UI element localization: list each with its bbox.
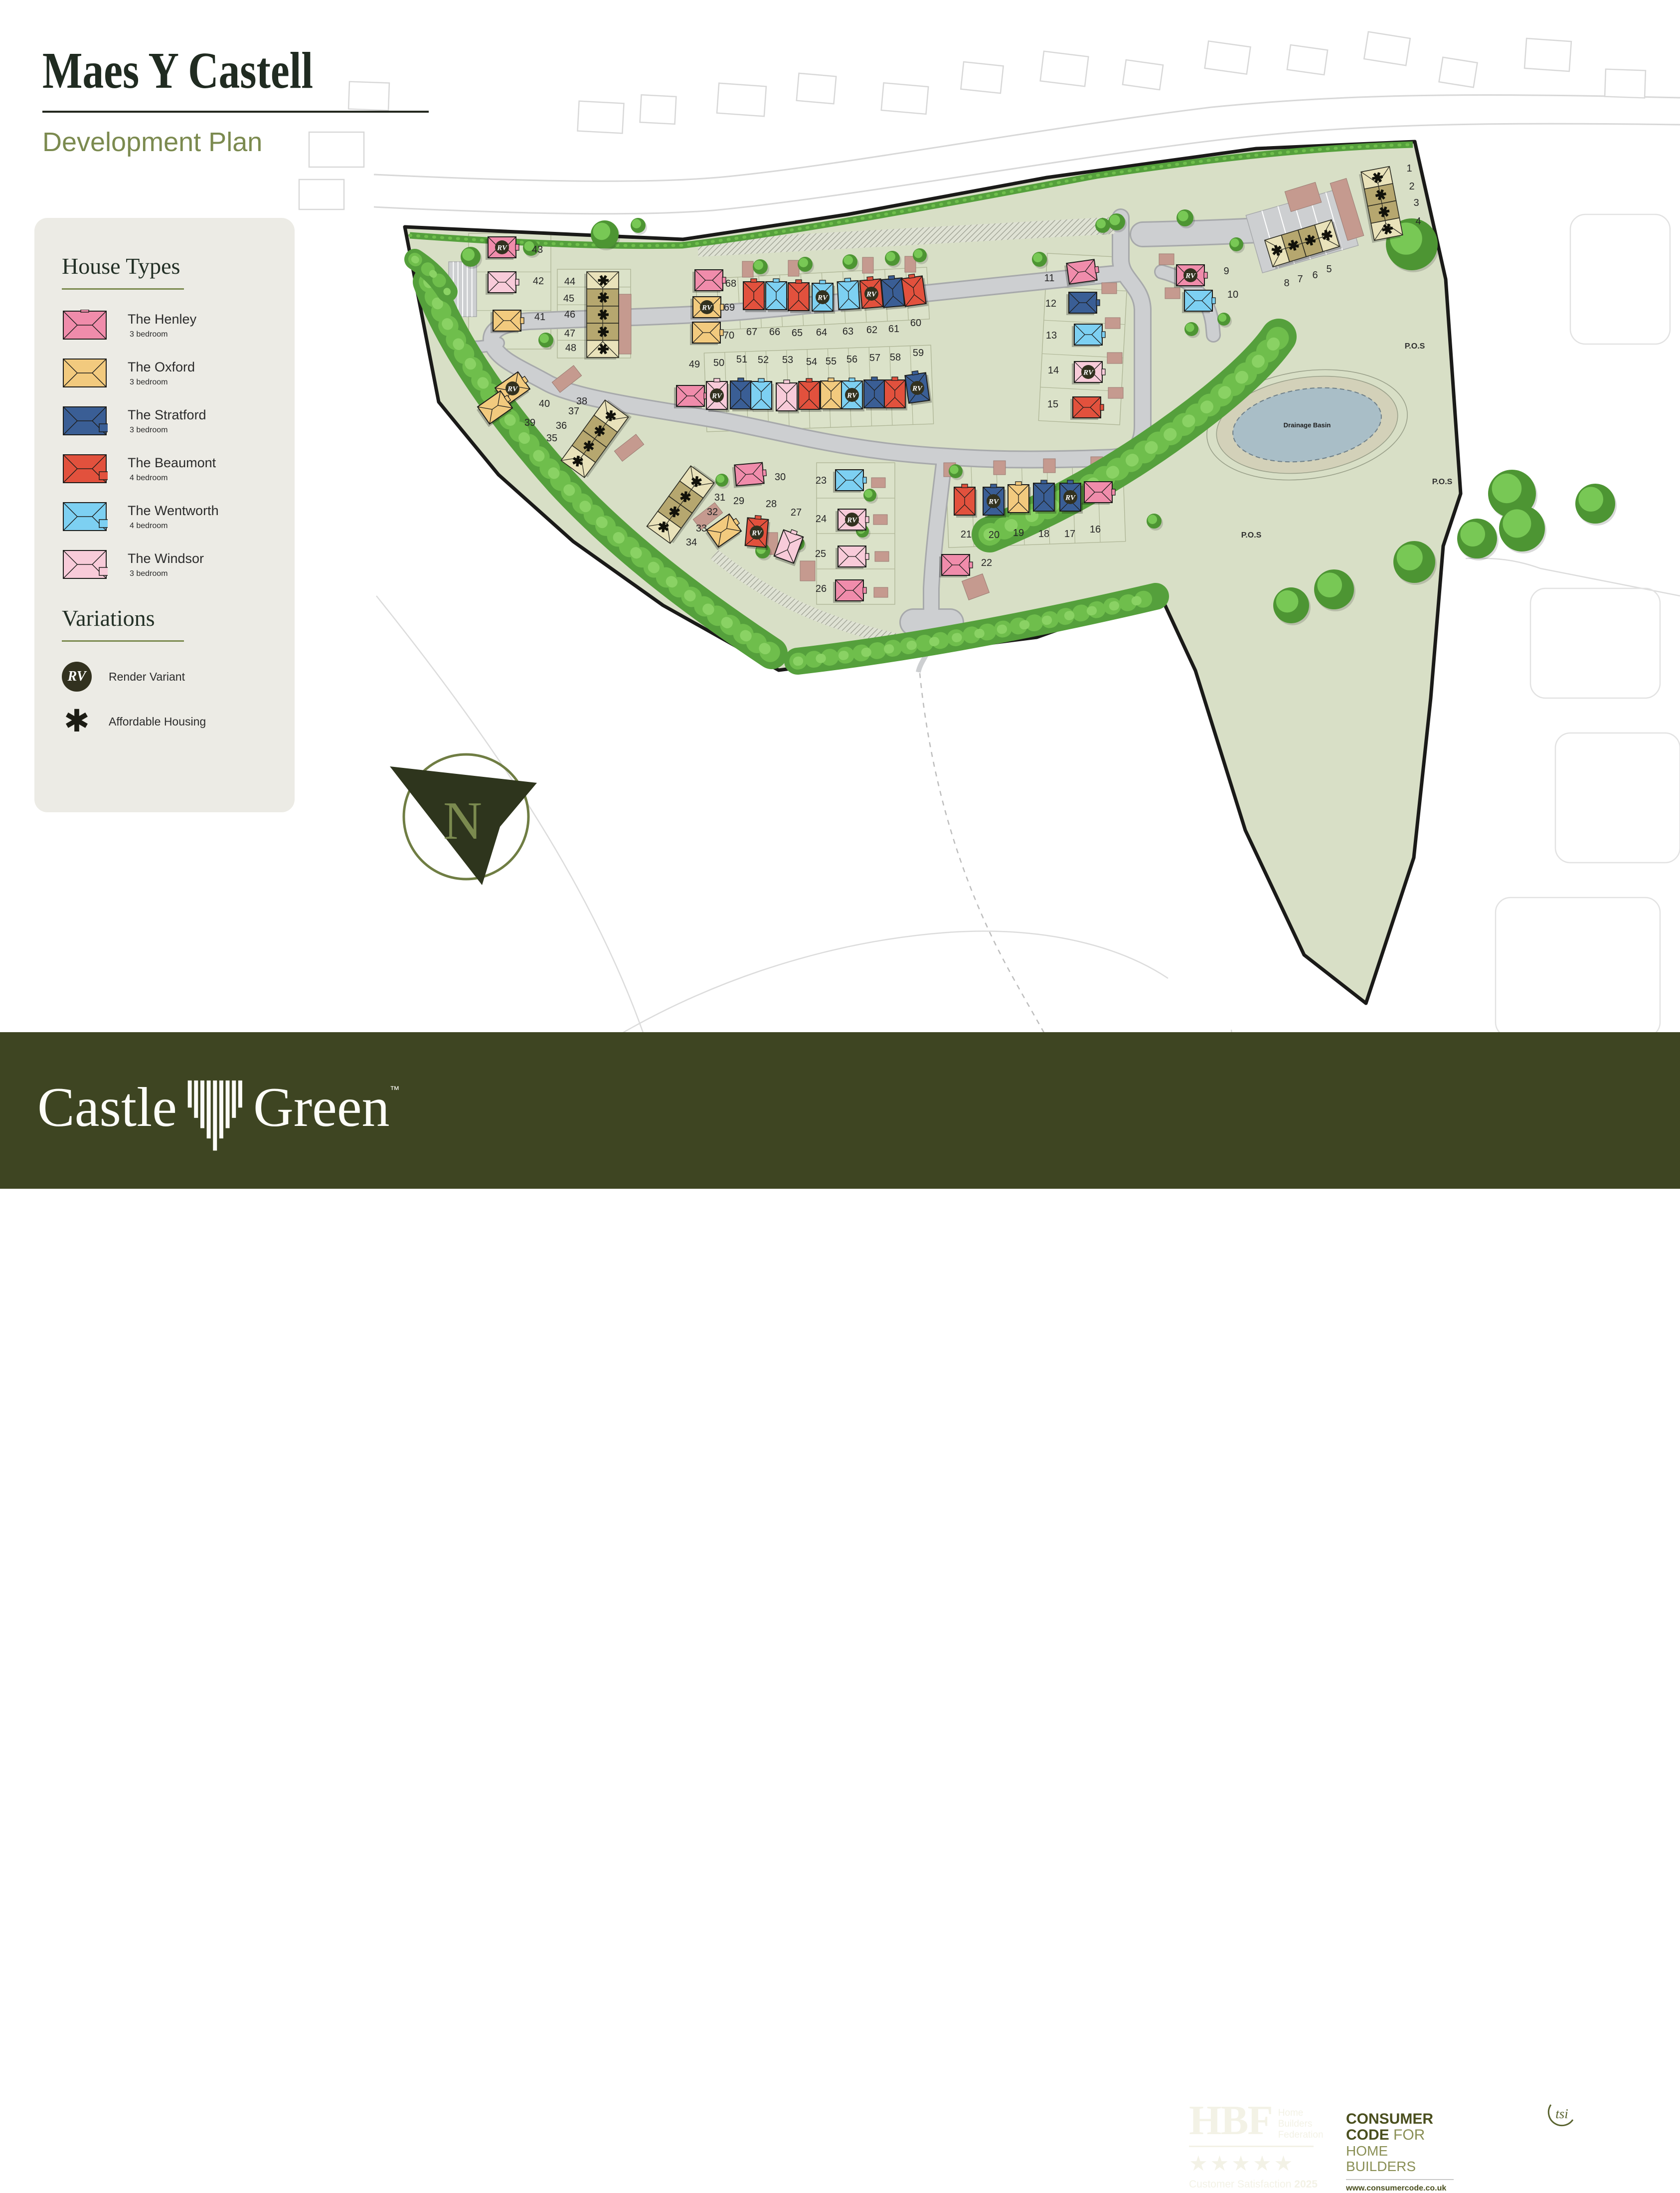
windsor-roof-icon (62, 549, 108, 580)
north-label: N (443, 791, 482, 851)
castle-green-logo: Castle Green ™ (37, 1080, 400, 1154)
pos-label: P.O.S (1241, 531, 1262, 540)
plot-number: 26 (816, 583, 827, 594)
render-variant-label: Render Variant (109, 670, 185, 684)
render-variant-icon: RV (62, 662, 92, 692)
plot-number: 18 (1038, 529, 1049, 540)
house-plot (692, 270, 726, 293)
castle-green-shield-icon (184, 1080, 246, 1154)
plot-number: 70 (723, 330, 734, 341)
house-type-name: The Windsor (128, 551, 204, 566)
wentworth-roof-icon (62, 501, 108, 532)
render-variant-badge: RV (710, 388, 724, 402)
render-variant-badge: RV (1063, 490, 1077, 504)
driveway (873, 515, 887, 525)
plot-number: 53 (782, 355, 793, 365)
driveway (618, 294, 631, 354)
driveway (742, 261, 753, 277)
plot-number: 22 (981, 557, 992, 568)
svg-text:RV: RV (1185, 272, 1196, 280)
plot-number: 66 (769, 327, 780, 338)
house-plot (1072, 324, 1105, 347)
legend-panel: House Types The Henley 3 bedroom The Oxf… (34, 218, 295, 812)
consumer-code-line2: CODE FOR (1346, 2127, 1454, 2143)
plot-number: 3 (1413, 197, 1419, 208)
consumer-code-line3: HOME BUILDERS (1346, 2144, 1454, 2175)
tree-icon (631, 218, 647, 235)
consumer-code-url: www.consumercode.co.uk (1346, 2184, 1454, 2193)
legend-title: House Types (62, 253, 267, 279)
legend-item-oxford: The Oxford 3 bedroom (62, 358, 267, 388)
plot-number: 2 (1409, 181, 1414, 192)
legend-item-henley: The Henley 3 bedroom (62, 310, 267, 341)
svg-text:RV: RV (507, 385, 518, 393)
plot-number: 14 (1048, 365, 1059, 376)
plot-number: 13 (1046, 330, 1057, 341)
legend-item-beaumont: The Beaumont 4 bedroom (62, 453, 267, 484)
svg-text:✱: ✱ (595, 309, 611, 320)
plot-number: 65 (792, 328, 803, 339)
plot-number: 19 (1013, 528, 1024, 539)
render-variant-badge: RV (505, 381, 519, 395)
plot-number: 41 (534, 312, 545, 323)
plot-number: 67 (746, 327, 757, 338)
tsi-approved-code-text: APPROVED CODE™ (1488, 2149, 1633, 2168)
brand-trademark: ™ (390, 1085, 400, 1096)
plot-number: 21 (961, 529, 972, 540)
svg-text:RV: RV (988, 498, 1000, 506)
plot-number: 24 (816, 514, 827, 525)
plot-number: 20 (989, 530, 1000, 541)
driveway (1043, 459, 1055, 473)
house-plot (954, 484, 977, 518)
driveway (800, 561, 815, 581)
svg-text:RV: RV (866, 291, 877, 299)
consumer-code-logo: CONSUMER CODE FOR HOME BUILDERS www.cons… (1337, 2103, 1463, 2177)
house-plot (776, 380, 799, 413)
house-type-beds: 3 bedroom (130, 378, 195, 387)
render-variant-badge: RV (845, 513, 859, 527)
plot-number: 60 (910, 318, 921, 329)
plot-number: 1 (1406, 163, 1412, 174)
house-plot (486, 272, 519, 295)
plot-number: 50 (713, 358, 724, 368)
plot-number: 38 (576, 396, 587, 407)
svg-text:RV: RV (1083, 369, 1094, 377)
plot-number: 40 (539, 398, 550, 409)
pos-label: P.O.S (1405, 342, 1425, 351)
house-plot (1182, 290, 1215, 313)
plot-number: 30 (775, 472, 786, 483)
tree-icon (1457, 519, 1499, 560)
plot-number: 61 (888, 324, 899, 335)
svg-text:RV: RV (497, 244, 508, 252)
legend-item-windsor: The Windsor 3 bedroom (62, 549, 267, 580)
hbf-logo: HBF HomeBuildersFederation ★★★★★ Custome… (1189, 2102, 1314, 2191)
plot-number: 16 (1090, 524, 1101, 535)
svg-text:RV: RV (701, 304, 713, 312)
hbf-mark: HBF (1189, 2102, 1272, 2140)
render-variant-badge: RV (987, 494, 1001, 508)
plot-number: 48 (565, 343, 576, 354)
page-subtitle: Development Plan (42, 127, 429, 158)
plot-number: 37 (568, 406, 579, 417)
house-plot (751, 378, 774, 412)
hbf-sub: HomeBuildersFederation (1278, 2108, 1324, 2141)
tree-icon (1499, 506, 1546, 553)
stratford-roof-icon (62, 405, 108, 436)
house-plot (1070, 397, 1104, 420)
plot-number: 69 (724, 302, 735, 313)
tree-icon (1575, 484, 1617, 526)
plot-number: 7 (1297, 274, 1303, 285)
render-variant-badge: RV (910, 381, 924, 395)
variations-underline (62, 640, 184, 642)
driveway (1102, 283, 1117, 294)
plot-number: 55 (826, 356, 837, 367)
brand-green: Green (253, 1080, 390, 1135)
svg-text:✱: ✱ (595, 343, 611, 355)
render-variant-badge: RV (845, 388, 859, 402)
svg-text:RV: RV (817, 294, 829, 302)
svg-text:✱: ✱ (595, 326, 611, 338)
plot-number: 46 (564, 309, 575, 320)
house-type-name: The Wentworth (128, 503, 219, 519)
plot-number: 54 (806, 357, 817, 367)
render-variant-badge: RV (495, 240, 509, 254)
plot-number: 36 (556, 420, 567, 431)
page-header: Maes Y Castell Development Plan (42, 45, 429, 158)
plot-number: 9 (1223, 266, 1229, 277)
house-type-beds: 4 bedroom (130, 474, 216, 483)
house-plot (1066, 292, 1100, 315)
render-variant-badge: RV (864, 287, 878, 301)
tsi-tradingstandards-text: TRADINGSTANDARDS.UK (1488, 2169, 1633, 2183)
plot-number: 12 (1045, 298, 1056, 309)
plot-number: 11 (1044, 273, 1055, 284)
house-plot (833, 470, 866, 493)
variations-title: Variations (62, 605, 267, 631)
plot-number: 34 (686, 537, 697, 548)
house-plot (1008, 482, 1031, 515)
plot-number: 25 (815, 548, 826, 559)
svg-text:RV: RV (711, 392, 723, 400)
title-underline (42, 111, 429, 113)
plot-number: 52 (758, 355, 769, 365)
driveway (1107, 353, 1122, 364)
house-type-name: The Henley (128, 312, 196, 327)
house-plot (833, 580, 866, 603)
driveway (1159, 254, 1174, 265)
affordable-housing-label: Affordable Housing (109, 715, 206, 729)
plot-number: 27 (791, 507, 802, 518)
plot-number: 10 (1227, 289, 1238, 300)
house-type-name: The Beaumont (128, 455, 216, 471)
svg-text:RV: RV (751, 530, 763, 538)
house-plot (939, 554, 973, 577)
beaumont-roof-icon (62, 453, 108, 484)
driveway (1165, 288, 1180, 299)
svg-text:RV: RV (1065, 494, 1076, 502)
svg-text:tsi: tsi (1555, 2106, 1568, 2121)
house-plot (821, 378, 843, 411)
render-variant-badge: RV (1081, 365, 1095, 379)
svg-text:RV: RV (912, 385, 923, 393)
house-plot (1033, 480, 1056, 514)
plot-number: 63 (842, 326, 853, 337)
plot-number: 44 (564, 276, 575, 287)
house-type-beds: 3 bedroom (130, 426, 206, 435)
svg-text:RV: RV (846, 517, 858, 525)
page-title: Maes Y Castell (42, 45, 359, 97)
house-type-beds: 3 bedroom (130, 569, 204, 578)
hbf-rule (1189, 2146, 1314, 2147)
plot-number: 64 (816, 327, 827, 338)
henley-roof-icon (62, 310, 108, 341)
driveway (1108, 387, 1123, 398)
plot-number: 59 (913, 348, 924, 359)
legend-item-wentworth: The Wentworth 4 bedroom (62, 501, 267, 532)
plot-number: 28 (766, 499, 777, 510)
tsi-mountain-icon: tsi (1491, 2097, 1630, 2149)
plot-number: 56 (846, 354, 857, 365)
plot-number: 31 (714, 492, 725, 503)
consumer-code-rule (1346, 2179, 1454, 2180)
house-plot (836, 546, 869, 569)
render-variant-item: RV Render Variant (62, 662, 267, 692)
plot-number: 5 (1326, 264, 1332, 275)
driveway (871, 478, 885, 488)
brand-castle: Castle (37, 1080, 177, 1135)
basin-label: Drainage Basin (1284, 421, 1331, 429)
plot-number: 8 (1284, 278, 1289, 289)
plot-number: 43 (532, 244, 543, 255)
house-plot (674, 385, 707, 408)
driveway (788, 260, 799, 276)
plot-number: 35 (546, 433, 557, 444)
oxford-roof-icon (62, 358, 108, 388)
house-plot (788, 280, 811, 313)
house-type-beds: 4 bedroom (130, 522, 219, 531)
svg-text:✱: ✱ (595, 292, 611, 303)
tsi-approved-code-logo: tsi APPROVED CODE™ TRADINGSTANDARDS.UK (1488, 2097, 1633, 2183)
affordable-terrace: ✱✱✱✱✱ (584, 272, 619, 360)
house-plot (766, 279, 789, 312)
house-plot (799, 378, 822, 412)
house-plot (864, 377, 887, 410)
plot-number: 58 (890, 352, 901, 363)
house-plot (491, 310, 524, 333)
plot-number: 17 (1064, 529, 1075, 540)
render-variant-badge: RV (1183, 268, 1197, 282)
plot-number: 47 (564, 328, 575, 339)
plot-number: 23 (816, 475, 827, 486)
plot-number: 29 (733, 496, 744, 507)
house-plot (1082, 482, 1115, 505)
driveway (862, 257, 873, 273)
plot-number: 6 (1312, 270, 1318, 281)
variations-section: Variations RV Render Variant ✱ Affordabl… (62, 605, 267, 736)
render-variant-badge: RV (816, 290, 830, 304)
legend-item-stratford: The Stratford 3 bedroom (62, 405, 267, 436)
house-type-name: The Oxford (128, 360, 195, 375)
svg-text:✱: ✱ (595, 274, 611, 286)
plot-number: 33 (696, 523, 707, 534)
plot-number: 42 (533, 276, 544, 287)
plot-number: 45 (563, 293, 574, 304)
pos-label: P.O.S (1432, 478, 1453, 486)
svg-text:RV: RV (846, 392, 858, 400)
driveway (1105, 318, 1120, 329)
driveway (875, 551, 889, 561)
house-type-beds: 3 bedroom (130, 330, 196, 339)
hbf-stars-icon: ★★★★★ (1189, 2151, 1314, 2176)
house-plot (690, 322, 723, 345)
plot-number: 39 (524, 417, 535, 428)
driveway (994, 461, 1006, 475)
hbf-satisfaction: Customer Satisfaction 2025 (1189, 2179, 1314, 2191)
affordable-housing-item: ✱ Affordable Housing (62, 707, 267, 736)
plot-number: 68 (725, 278, 736, 289)
render-variant-badge: RV (750, 526, 764, 540)
plot-number: 51 (736, 354, 747, 365)
plot-number: 49 (689, 359, 700, 370)
house-plot (837, 278, 861, 312)
house-plot (730, 378, 753, 411)
plot-number: 32 (707, 507, 718, 518)
plot-number: 57 (869, 353, 880, 364)
driveway (874, 587, 888, 597)
plot-number: 15 (1047, 399, 1058, 410)
plot-number: 62 (866, 325, 877, 336)
north-arrow: N (390, 754, 537, 885)
affordable-housing-icon: ✱ (62, 707, 92, 736)
footer-bar: Castle Green ™ HBF HomeBuildersFederatio… (0, 1032, 1680, 1189)
legend-underline (62, 288, 184, 290)
house-plot (884, 377, 907, 410)
plot-number: 4 (1415, 216, 1421, 227)
render-variant-badge: RV (700, 300, 714, 314)
house-plot (743, 279, 766, 312)
house-type-name: The Stratford (128, 407, 206, 423)
consumer-code-line1: CONSUMER (1346, 2111, 1454, 2127)
